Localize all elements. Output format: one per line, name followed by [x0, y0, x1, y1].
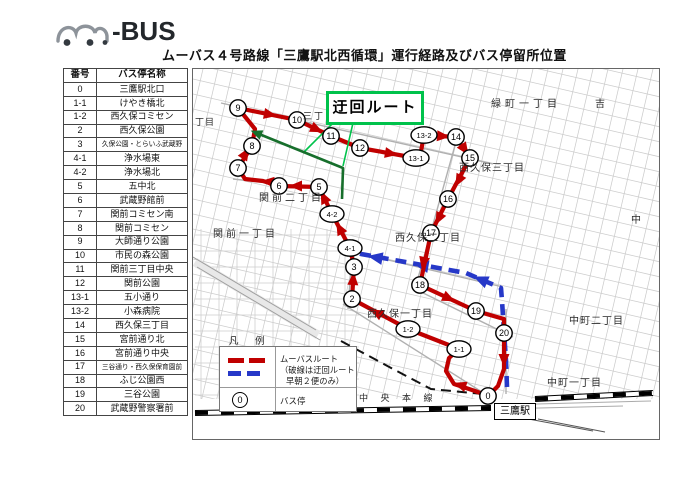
legend-route-note: 早朝２便のみ） [286, 375, 344, 387]
table-row: 2西久保公園 [64, 124, 188, 138]
stop-name-cell: 大師通り公園 [97, 235, 188, 249]
stop-name-cell: 久保公園・とらいふ武蔵野 [97, 138, 188, 152]
district-label: 吉 [595, 95, 605, 110]
stop-number-cell: 1-1 [64, 96, 97, 110]
legend-bus-route-symbol [228, 358, 244, 363]
table-row: 18ふじ公園西 [64, 374, 188, 388]
district-label: 関前一丁目 [213, 225, 278, 240]
table-row: 0三鷹駅北口 [64, 82, 188, 96]
district-label: 丁目 [195, 115, 215, 128]
district-label: 三丁 [303, 109, 325, 122]
stop-name-cell: 宮前通り北 [97, 332, 188, 346]
page-title: ムーバス４号路線「三鷹駅北西循環」運行経路及びバス停留所位置 [162, 45, 582, 64]
district-label: 関前二丁目 [259, 189, 324, 204]
table-row: 17三谷通り・西久保保育園前 [64, 360, 188, 374]
stop-number-cell: 12 [64, 277, 97, 291]
bus-stop-number: 0 [485, 391, 490, 401]
table-row: 10市民の森公園 [64, 249, 188, 263]
stop-number-cell: 4-2 [64, 166, 97, 180]
legend-divider-vertical [275, 347, 276, 411]
stop-name-cell: 五中北 [97, 180, 188, 194]
page: -BUS ムーバス４号路線「三鷹駅北西循環」運行経路及びバス停留所位置 番号 バ… [0, 0, 690, 488]
bus-stop-number: 1-1 [454, 345, 465, 354]
table-row: 7関前コミセン南 [64, 207, 188, 221]
bus-stop-number: 13-1 [408, 154, 423, 163]
stop-number-cell: 10 [64, 249, 97, 263]
table-row: 11関前三丁目中央 [64, 263, 188, 277]
street-line [193, 92, 659, 204]
legend-detour-route-symbol [247, 371, 260, 376]
stop-number-cell: 14 [64, 319, 97, 333]
bus-stop-number: 3 [351, 262, 356, 272]
stop-number-cell: 1-2 [64, 110, 97, 124]
table-row: 4-2浄水場北 [64, 166, 188, 180]
district-label: 西久保三丁目 [459, 159, 525, 174]
stop-number-cell: 9 [64, 235, 97, 249]
stop-number-cell: 4-1 [64, 152, 97, 166]
bus-stop-number: 4-1 [345, 244, 356, 253]
stop-name-cell: 関前三丁目中央 [97, 263, 188, 277]
stop-name-cell: 武蔵野警察署前 [97, 402, 188, 416]
table-row: 15宮前通り北 [64, 332, 188, 346]
table-row: 1-2西久保コミセン [64, 110, 188, 124]
stop-name-cell: 関前コミセン南 [97, 207, 188, 221]
bus-stop-number: 12 [355, 143, 365, 153]
stop-number-cell: 20 [64, 402, 97, 416]
table-row: 9大師通り公園 [64, 235, 188, 249]
bus-stop-number: 16 [443, 194, 453, 204]
stop-name-cell: 三谷公園 [97, 388, 188, 402]
stop-name-cell: 五小通り [97, 291, 188, 305]
stop-number-cell: 17 [64, 360, 97, 374]
bus-stop-number: 4-2 [327, 210, 338, 219]
stop-name-cell: ふじ公園西 [97, 374, 188, 388]
street-line [193, 69, 659, 114]
stop-name-cell: 浄水場東 [97, 152, 188, 166]
table-row: 19三谷公園 [64, 388, 188, 402]
street-line [610, 69, 659, 439]
legend-stop-symbol: 0 [232, 392, 248, 408]
stop-name-cell: 三鷹駅北口 [97, 82, 188, 96]
stop-number-cell: 15 [64, 332, 97, 346]
district-label: 中町一丁目 [547, 374, 602, 389]
district-label: 中 央 本 線 [359, 391, 438, 404]
bus-stop-number: 10 [292, 115, 302, 125]
bus-stop-number: 14 [451, 132, 461, 142]
stop-name-cell: 関前コミセン [97, 221, 188, 235]
stop-number-cell: 16 [64, 346, 97, 360]
bus-stop-number: 18 [415, 280, 425, 290]
stop-name-cell: けやき橋北 [97, 96, 188, 110]
stop-name-cell: 西久保コミセン [97, 110, 188, 124]
stop-name-cell: 西久保公園 [97, 124, 188, 138]
legend-bus-route-symbol [249, 358, 265, 363]
street-line [625, 69, 659, 439]
bus-stop-number: 2 [349, 294, 354, 304]
district-label: 緑町一丁目 [491, 95, 561, 110]
stop-name-cell: 宮前通り中央 [97, 346, 188, 360]
mitaka-station-label: 三鷹駅 [494, 403, 536, 420]
legend-divider-horizontal [220, 387, 356, 388]
stop-number-cell: 7 [64, 207, 97, 221]
stop-name-cell: 浄水場北 [97, 166, 188, 180]
stop-name-cell: 三谷通り・西久保保育園前 [97, 360, 188, 374]
stop-number-cell: 19 [64, 388, 97, 402]
stop-number-cell: 0 [64, 82, 97, 96]
stop-number-cell: 3 [64, 138, 97, 152]
table-row: 13-2小森病院 [64, 305, 188, 319]
table-header-row: 番号 バス停名称 [64, 69, 188, 83]
detour-route-callout: 迂回ルート [326, 91, 424, 125]
table-row: 20武蔵野警察署前 [64, 402, 188, 416]
bus-stop-number: 9 [235, 103, 240, 113]
table-row: 14西久保三丁目 [64, 319, 188, 333]
bus-stop-number: 13-2 [416, 131, 431, 140]
logo-text: -BUS [112, 16, 176, 47]
col-header-number: 番号 [64, 69, 97, 83]
table-row: 5五中北 [64, 180, 188, 194]
stop-number-cell: 13-2 [64, 305, 97, 319]
stop-name-cell: 武蔵野館前 [97, 194, 188, 208]
bus-stop-number: 8 [249, 141, 254, 151]
stop-number-cell: 5 [64, 180, 97, 194]
bus-stop-number: 11 [326, 131, 335, 141]
bus-stop-number: 19 [471, 306, 481, 316]
legend-stop-label: バス停 [280, 395, 306, 407]
bus-stop-number: 20 [499, 328, 509, 338]
bus-stop-number: 1-2 [403, 325, 414, 334]
stop-number-cell: 8 [64, 221, 97, 235]
street-line [197, 267, 320, 340]
stop-number-cell: 6 [64, 194, 97, 208]
table-row: 13-1五小通り [64, 291, 188, 305]
bus-route-arrow [441, 291, 457, 306]
table-row: 6武蔵野館前 [64, 194, 188, 208]
table-row: 4-1浄水場東 [64, 152, 188, 166]
district-label: 西久保一丁目 [367, 305, 433, 320]
table-row: 3久保公園・とらいふ武蔵野 [64, 138, 188, 152]
col-header-name: バス停名称 [97, 69, 188, 83]
stop-number-cell: 18 [64, 374, 97, 388]
legend-detour-route-symbol [228, 371, 241, 376]
stop-name-cell: 市民の森公園 [97, 249, 188, 263]
stop-name-cell: 西久保三丁目 [97, 319, 188, 333]
stop-number-cell: 2 [64, 124, 97, 138]
map-legend: ムーバスルート （破線は迂回ルート 早朝２便のみ） 0 バス停 [219, 346, 357, 412]
stop-number-cell: 11 [64, 263, 97, 277]
legend-title: 凡 例 [229, 333, 272, 347]
table-row: 12関前公園 [64, 277, 188, 291]
bus-stop-table: 番号 バス停名称 0三鷹駅北口1-1けやき橋北1-2西久保コミセン2西久保公園3… [63, 68, 188, 416]
table-row: 1-1けやき橋北 [64, 96, 188, 110]
district-label: 中町二丁目 [569, 312, 624, 327]
district-label: 西久保二丁目 [395, 229, 461, 244]
table-row: 16宮前通り中央 [64, 346, 188, 360]
stop-name-cell: 小森病院 [97, 305, 188, 319]
table-row: 8関前コミセン [64, 221, 188, 235]
route-map: 01-11-2234-14-25678910111213-113-2141516… [192, 68, 660, 440]
stop-number-cell: 13-1 [64, 291, 97, 305]
bus-stop-number: 7 [235, 163, 240, 173]
street-line [655, 69, 659, 439]
stop-name-cell: 関前公園 [97, 277, 188, 291]
street-line [193, 69, 659, 99]
district-label: 中 [631, 211, 641, 226]
